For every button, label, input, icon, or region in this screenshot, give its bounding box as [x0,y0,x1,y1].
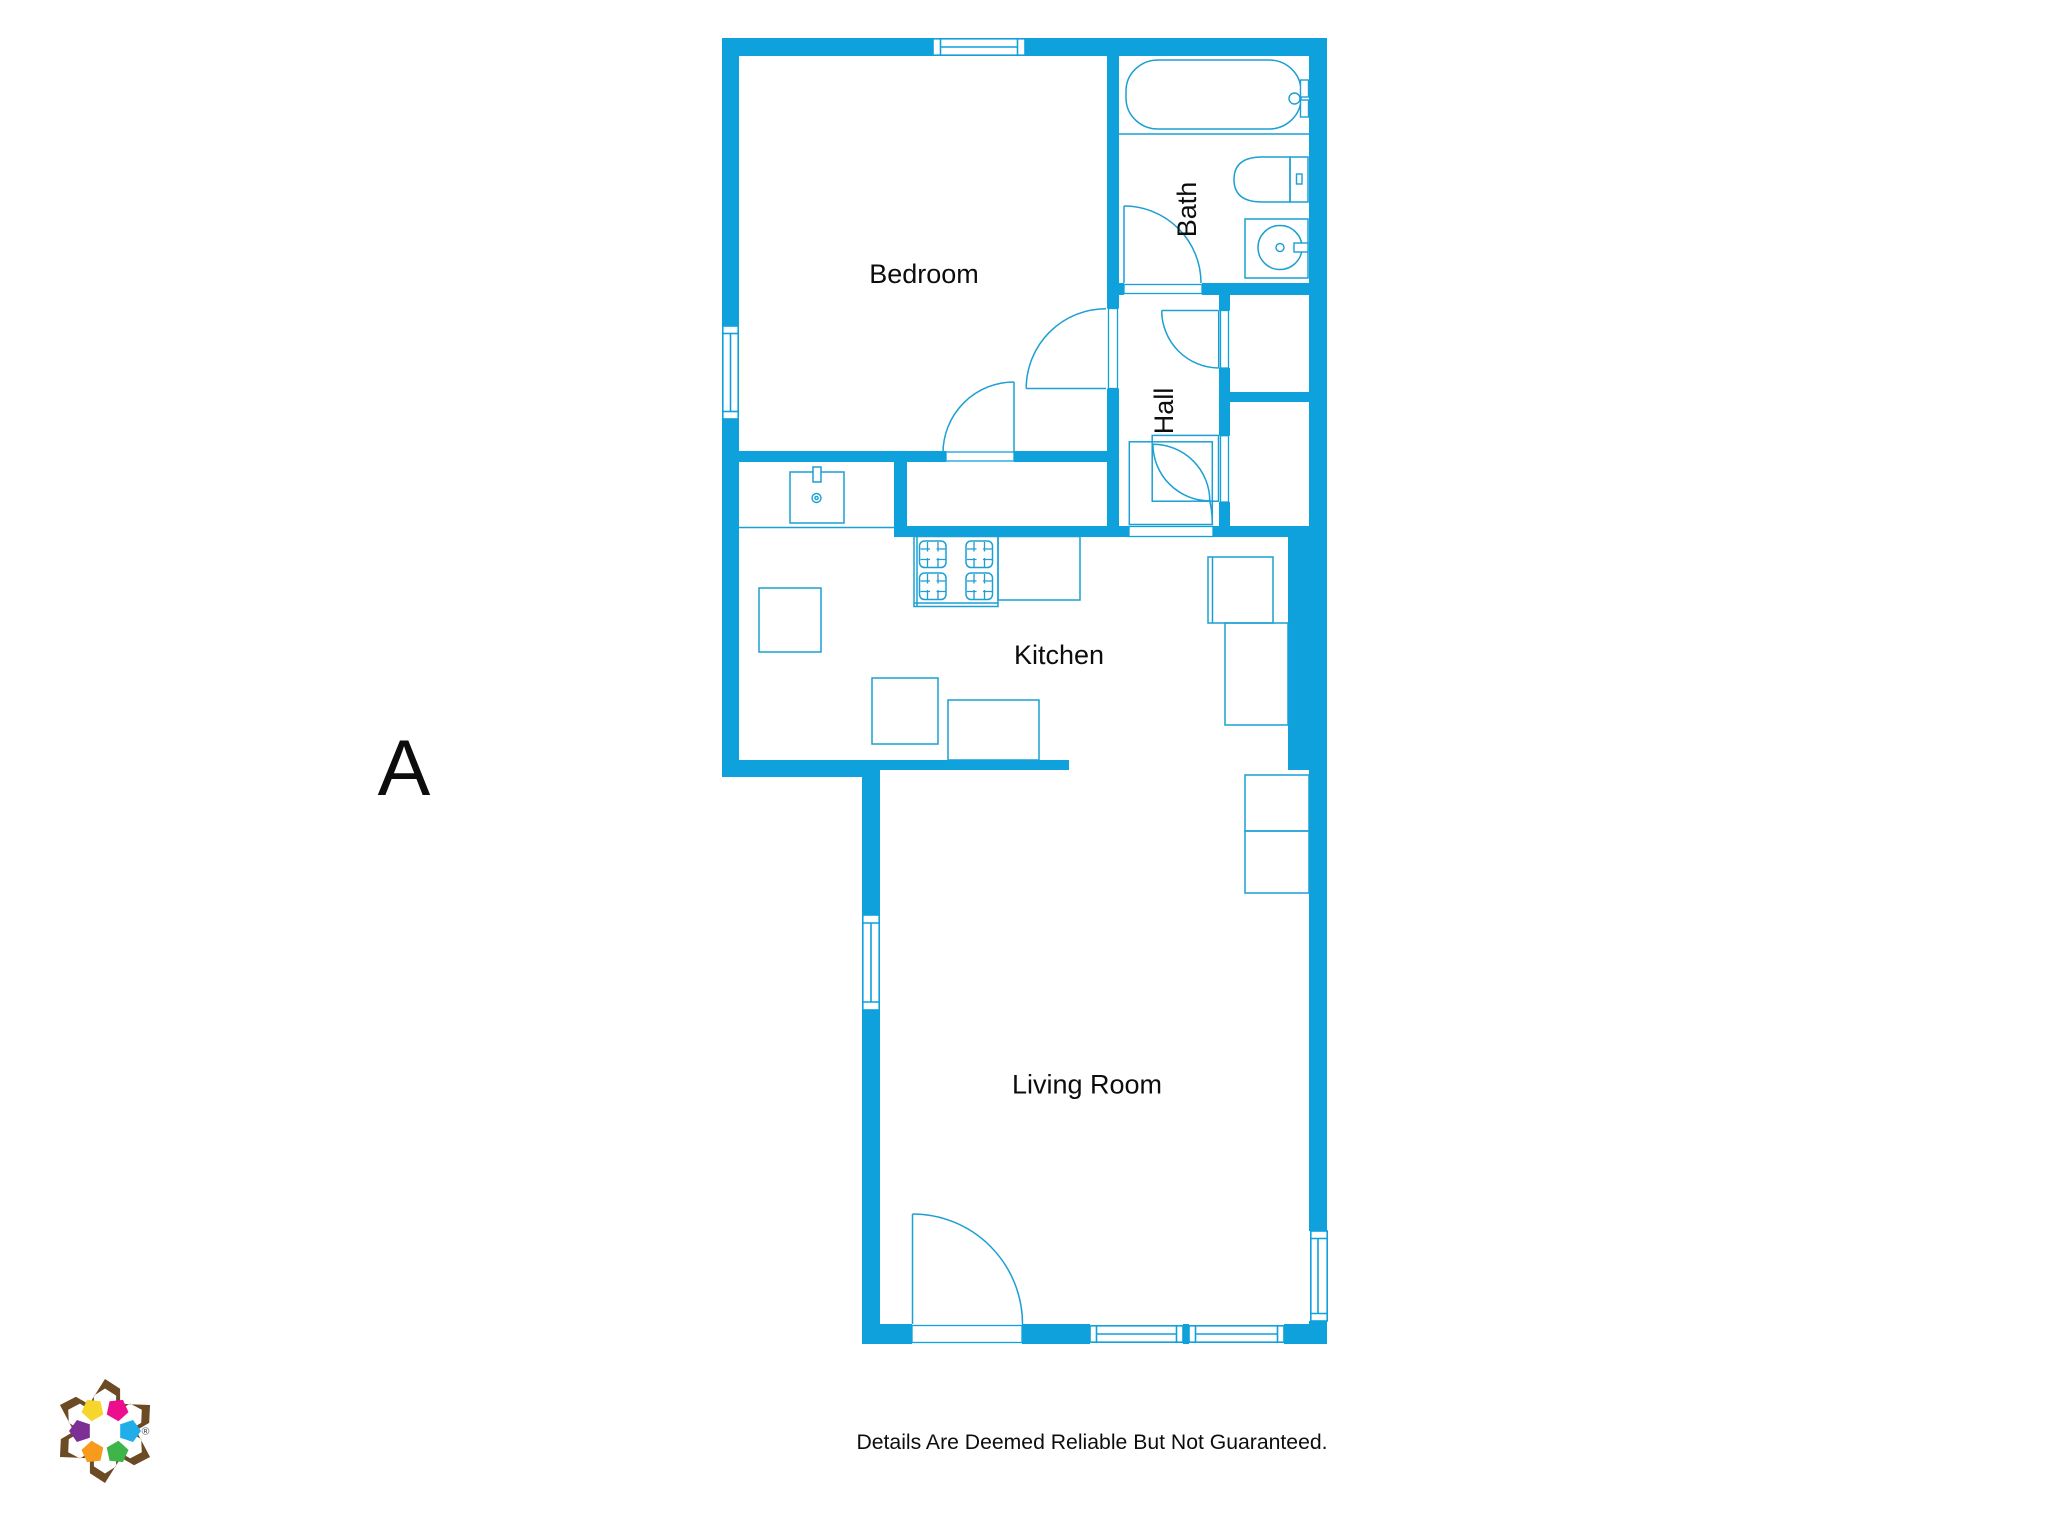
svg-text:Bath: Bath [1172,182,1202,238]
svg-text:R: R [144,1429,148,1435]
svg-text:Bedroom: Bedroom [869,259,979,289]
svg-text:A: A [378,723,431,812]
svg-text:Hall: Hall [1149,388,1179,435]
svg-text:Living Room: Living Room [1012,1070,1162,1100]
svg-text:Details Are Deemed Reliable Bu: Details Are Deemed Reliable But Not Guar… [856,1431,1327,1454]
svg-text:Kitchen: Kitchen [1014,640,1104,670]
